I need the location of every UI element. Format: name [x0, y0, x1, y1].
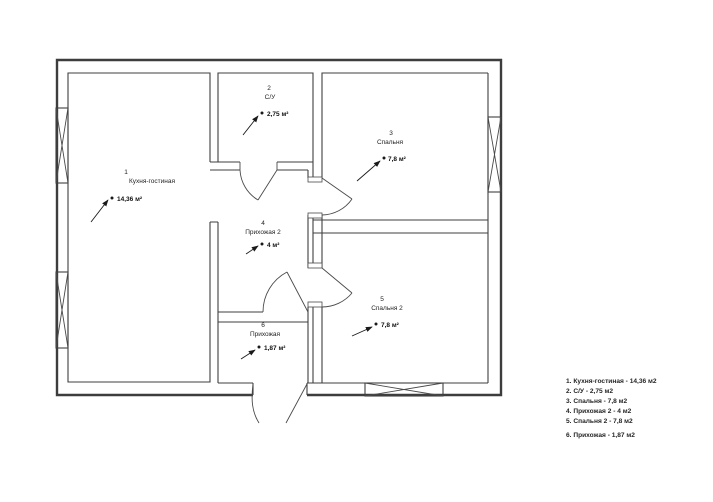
room-label-bedroom1: 3 Спальня 7,8 м² — [357, 130, 407, 181]
room-area: 2,75 м² — [267, 111, 289, 118]
legend-item: 5. Спальня 2 - 7,8 м2 — [566, 418, 633, 425]
bathroom-bottom-wall — [210, 162, 313, 170]
room-bathroom-walls — [218, 73, 313, 162]
legend-item: 1. Кухня-гостиная - 14,36 м2 — [566, 378, 657, 385]
room-label-bedroom2: 5 Спальня 2 7,8 м² — [352, 296, 403, 336]
room-name: С/У — [265, 94, 277, 101]
windows — [56, 108, 501, 396]
room-name: Прихожая 2 — [245, 229, 281, 236]
leader-dot — [375, 323, 378, 326]
door-jamb — [308, 302, 322, 307]
leader-arrow — [246, 246, 258, 254]
door-swing-bedroom1 — [322, 178, 352, 215]
floor-plan-page: 1 Кухня-гостиная 14,36 м² 2 С/У 2,75 м² … — [0, 0, 713, 502]
legend-item: 6. Прихожая - 1,87 м2 — [566, 432, 635, 439]
floor-plan-svg: 1 Кухня-гостиная 14,36 м² 2 С/У 2,75 м² … — [0, 0, 713, 502]
leader-dot — [261, 243, 264, 246]
room-number: 1 — [124, 169, 128, 176]
room-name: Кухня-гостиная — [129, 178, 175, 185]
leader-arrow — [91, 200, 108, 222]
room-number: 2 — [267, 85, 271, 92]
leader-dot — [258, 346, 261, 349]
corridor-right-wall — [308, 162, 313, 383]
room-kitchen-walls — [68, 73, 210, 382]
room-area: 1,87 м² — [264, 345, 286, 352]
room-area: 7,8 м² — [381, 322, 400, 329]
room-number: 6 — [261, 322, 265, 329]
room-label-hallway: 6 Прихожая 1,87 м² — [241, 322, 286, 359]
door-jamb — [308, 213, 322, 218]
room-area: 14,36 м² — [117, 196, 143, 203]
door-swing-corridor-hallway — [263, 272, 308, 312]
corridor-left-wall — [210, 222, 218, 383]
leader-dot — [383, 157, 386, 160]
leader-arrow — [357, 161, 380, 181]
room-name: Спальня 2 — [371, 305, 403, 312]
room-labels: 1 Кухня-гостиная 14,36 м² 2 С/У 2,75 м² … — [91, 85, 407, 359]
door-jamb — [308, 263, 322, 268]
room-name: Спальня — [377, 139, 404, 146]
room-area: 4 м² — [267, 242, 280, 249]
legend: 1. Кухня-гостиная - 14,36 м2 2. С/У - 2,… — [566, 378, 657, 439]
room-area: 7,8 м² — [388, 156, 407, 163]
door-swing-entrance — [252, 384, 307, 423]
leader-dot — [111, 197, 114, 200]
door-swing-bedroom2 — [322, 268, 352, 307]
room-name: Прихожая — [250, 331, 281, 338]
room-label-kitchen: 1 Кухня-гостиная 14,36 м² — [91, 169, 175, 222]
room-label-corridor: 4 Прихожая 2 4 м² — [245, 220, 281, 254]
leader-arrow — [241, 350, 255, 359]
door-swing-bathroom — [240, 170, 277, 200]
room-number: 3 — [389, 130, 393, 137]
legend-item: 3. Спальня - 7,8 м2 — [566, 398, 628, 405]
leader-arrow — [352, 327, 372, 336]
leader-arrow — [243, 116, 258, 135]
bathroom-door-jambs — [240, 162, 277, 170]
leader-dot — [261, 112, 264, 115]
doors — [240, 170, 352, 423]
corridor-hallway-wall — [218, 312, 308, 322]
window-symbol-right — [488, 117, 501, 192]
door-jamb — [308, 177, 322, 182]
room-hallway-walls — [218, 383, 308, 395]
room-label-bathroom: 2 С/У 2,75 м² — [243, 85, 289, 135]
legend-item: 4. Прихожая 2 - 4 м2 — [566, 408, 632, 415]
legend-item: 2. С/У - 2,75 м2 — [566, 388, 613, 395]
room-bedroom1-walls — [313, 73, 488, 233]
room-number: 4 — [261, 220, 265, 227]
room-number: 5 — [380, 296, 384, 303]
